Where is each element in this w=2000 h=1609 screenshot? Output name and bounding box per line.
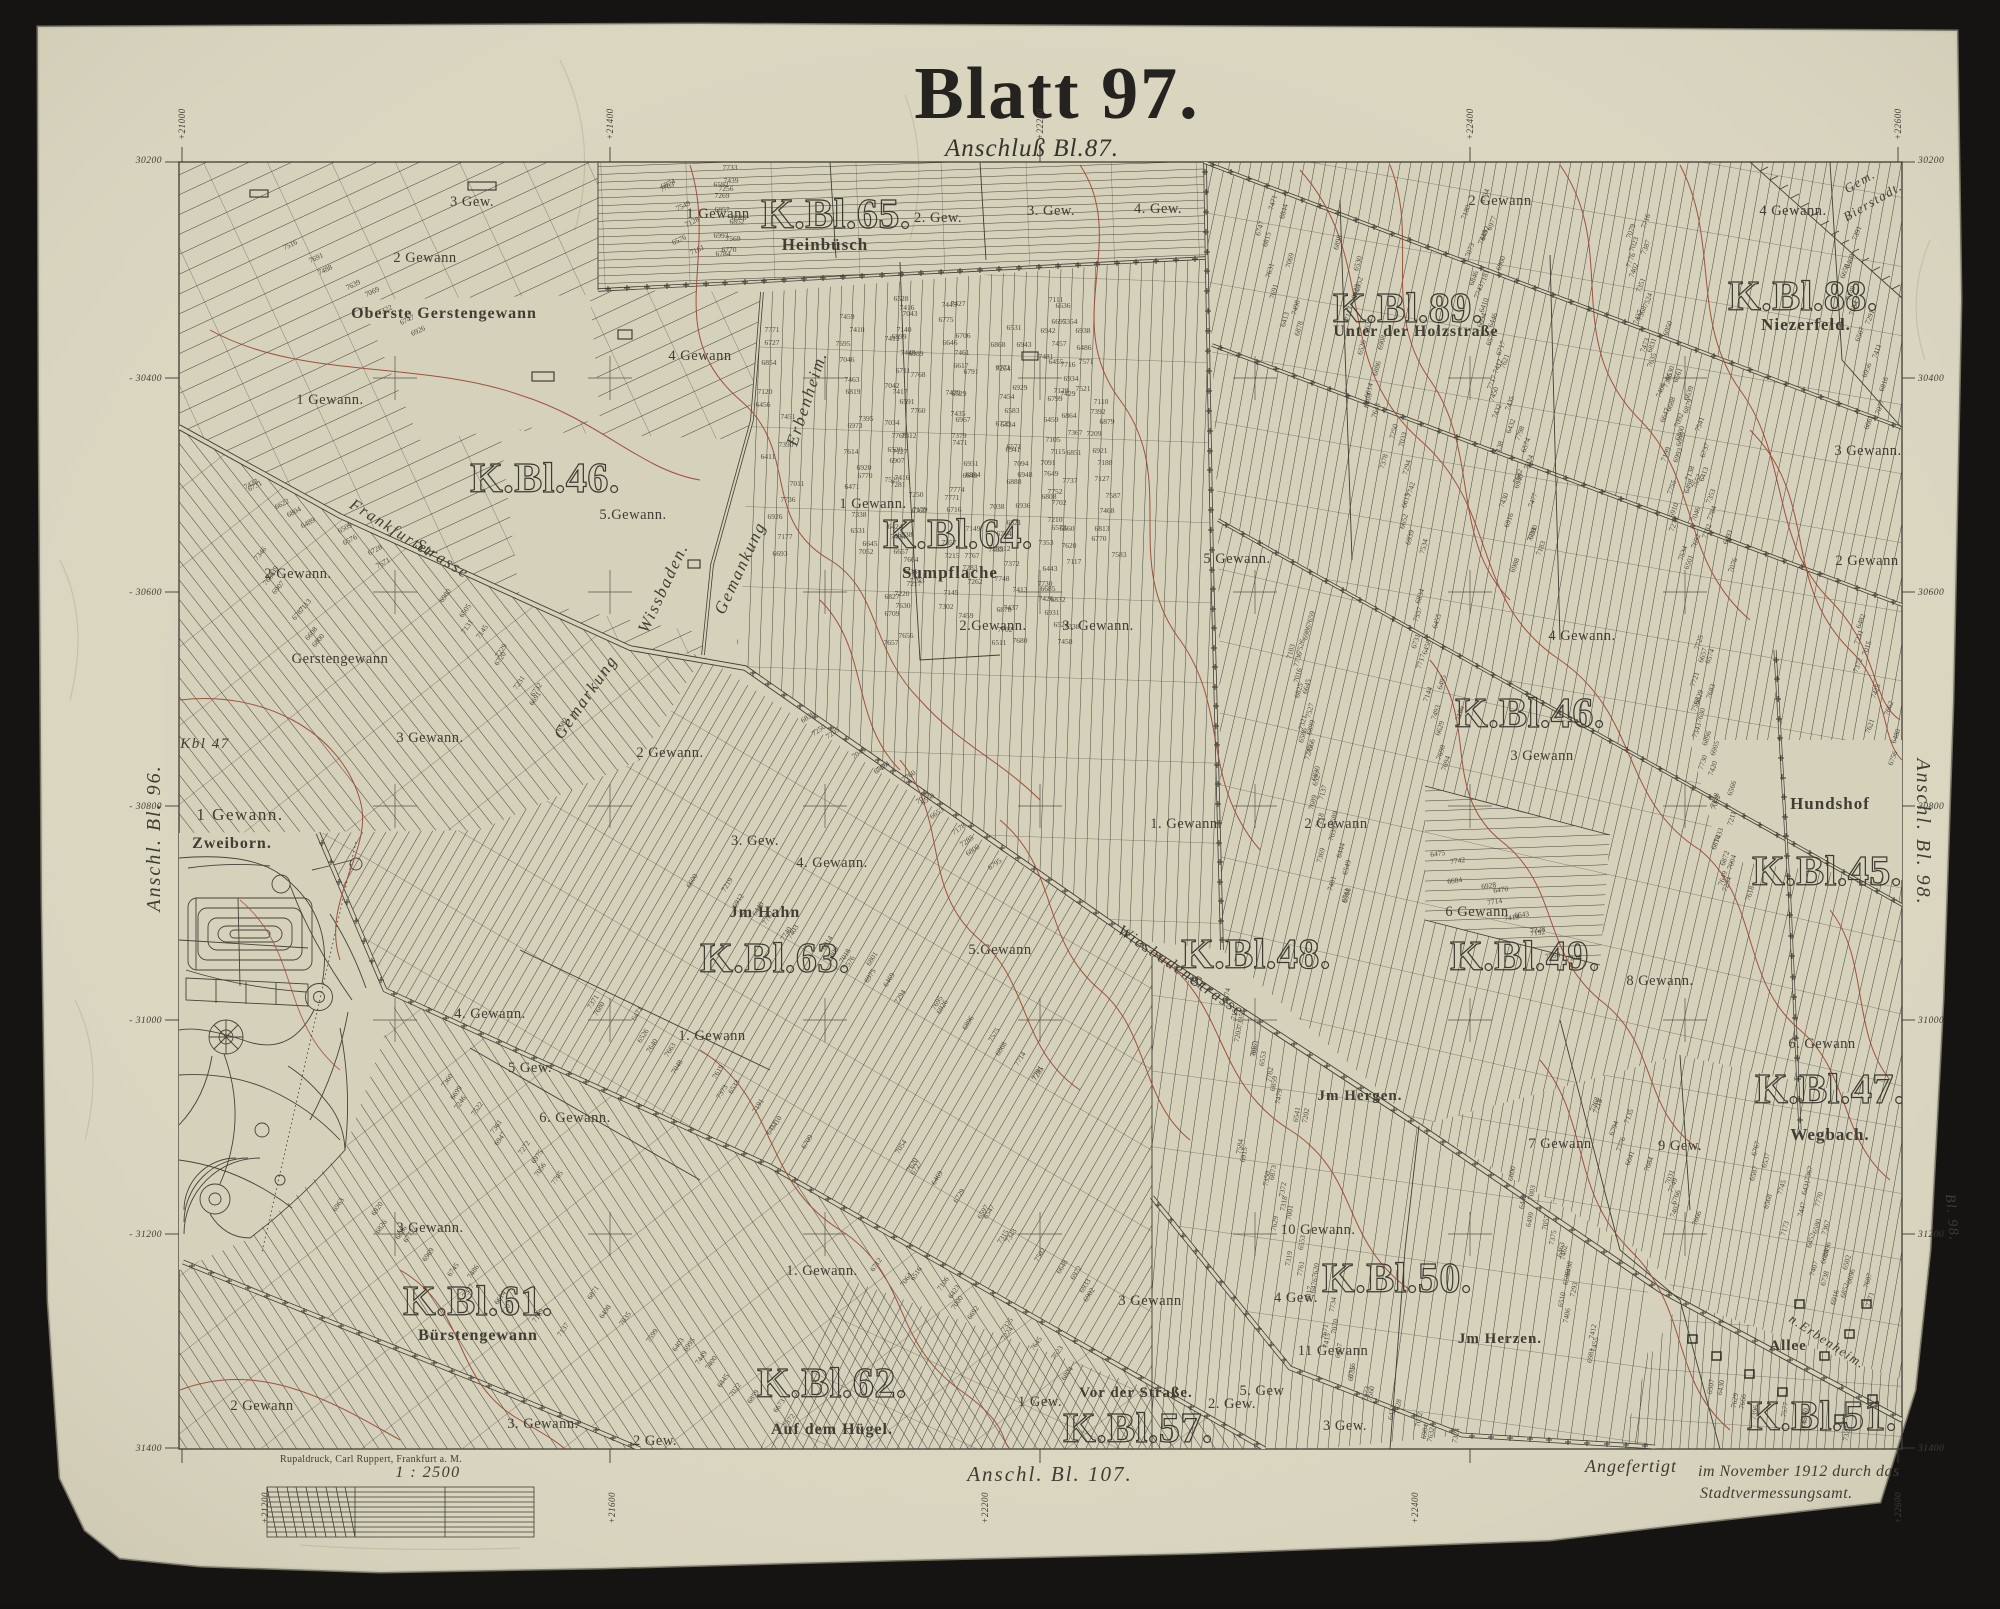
svg-text:- 31200: - 31200 xyxy=(129,1230,162,1240)
svg-text:Stadtvermessungsamt.: Stadtvermessungsamt. xyxy=(1700,1485,1853,1502)
svg-text:+22600: +22600 xyxy=(1893,108,1903,140)
svg-text:30200: 30200 xyxy=(135,156,162,166)
svg-text:30400: 30400 xyxy=(1917,374,1944,384)
svg-text:+22600: +22600 xyxy=(1893,1492,1903,1524)
svg-text:+21400: +21400 xyxy=(605,108,615,140)
svg-text:Blatt 97.: Blatt 97. xyxy=(914,53,1199,135)
svg-text:30800: 30800 xyxy=(1917,802,1944,812)
svg-text:Anschluß Bl.87.: Anschluß Bl.87. xyxy=(943,135,1119,162)
svg-text:+22200: +22200 xyxy=(1035,108,1045,140)
svg-text:- 30600: - 30600 xyxy=(129,588,162,598)
svg-text:im November 1912 durch das: im November 1912 durch das xyxy=(1698,1463,1900,1480)
svg-text:30200: 30200 xyxy=(1917,156,1944,166)
svg-text:31200: 31200 xyxy=(1917,1230,1944,1240)
svg-text:+22400: +22400 xyxy=(1410,1492,1420,1524)
svg-text:- 30800: - 30800 xyxy=(129,802,162,812)
svg-text:- 31000: - 31000 xyxy=(129,1016,162,1026)
svg-text:+21600: +21600 xyxy=(607,1492,617,1524)
svg-text:+21200: +21200 xyxy=(260,1492,270,1524)
svg-text:1 : 2500: 1 : 2500 xyxy=(395,1464,460,1481)
svg-text:- 30400: - 30400 xyxy=(129,374,162,384)
svg-text:31400: 31400 xyxy=(1917,1444,1944,1454)
svg-text:+22200: +22200 xyxy=(980,1492,990,1524)
svg-text:+22400: +22400 xyxy=(1465,108,1475,140)
svg-text:Anschl. Bl. 96.: Anschl. Bl. 96. xyxy=(143,764,165,913)
svg-text:31000: 31000 xyxy=(1917,1016,1944,1026)
svg-text:Angefertigt: Angefertigt xyxy=(1584,1456,1677,1476)
svg-text:+21000: +21000 xyxy=(177,108,187,140)
svg-text:31400: 31400 xyxy=(135,1444,162,1454)
svg-text:30600: 30600 xyxy=(1917,588,1944,598)
svg-text:Anschl. Bl. 98.: Anschl. Bl. 98. xyxy=(1912,756,1934,905)
svg-text:Anschl. Bl. 107.: Anschl. Bl. 107. xyxy=(965,1462,1133,1486)
